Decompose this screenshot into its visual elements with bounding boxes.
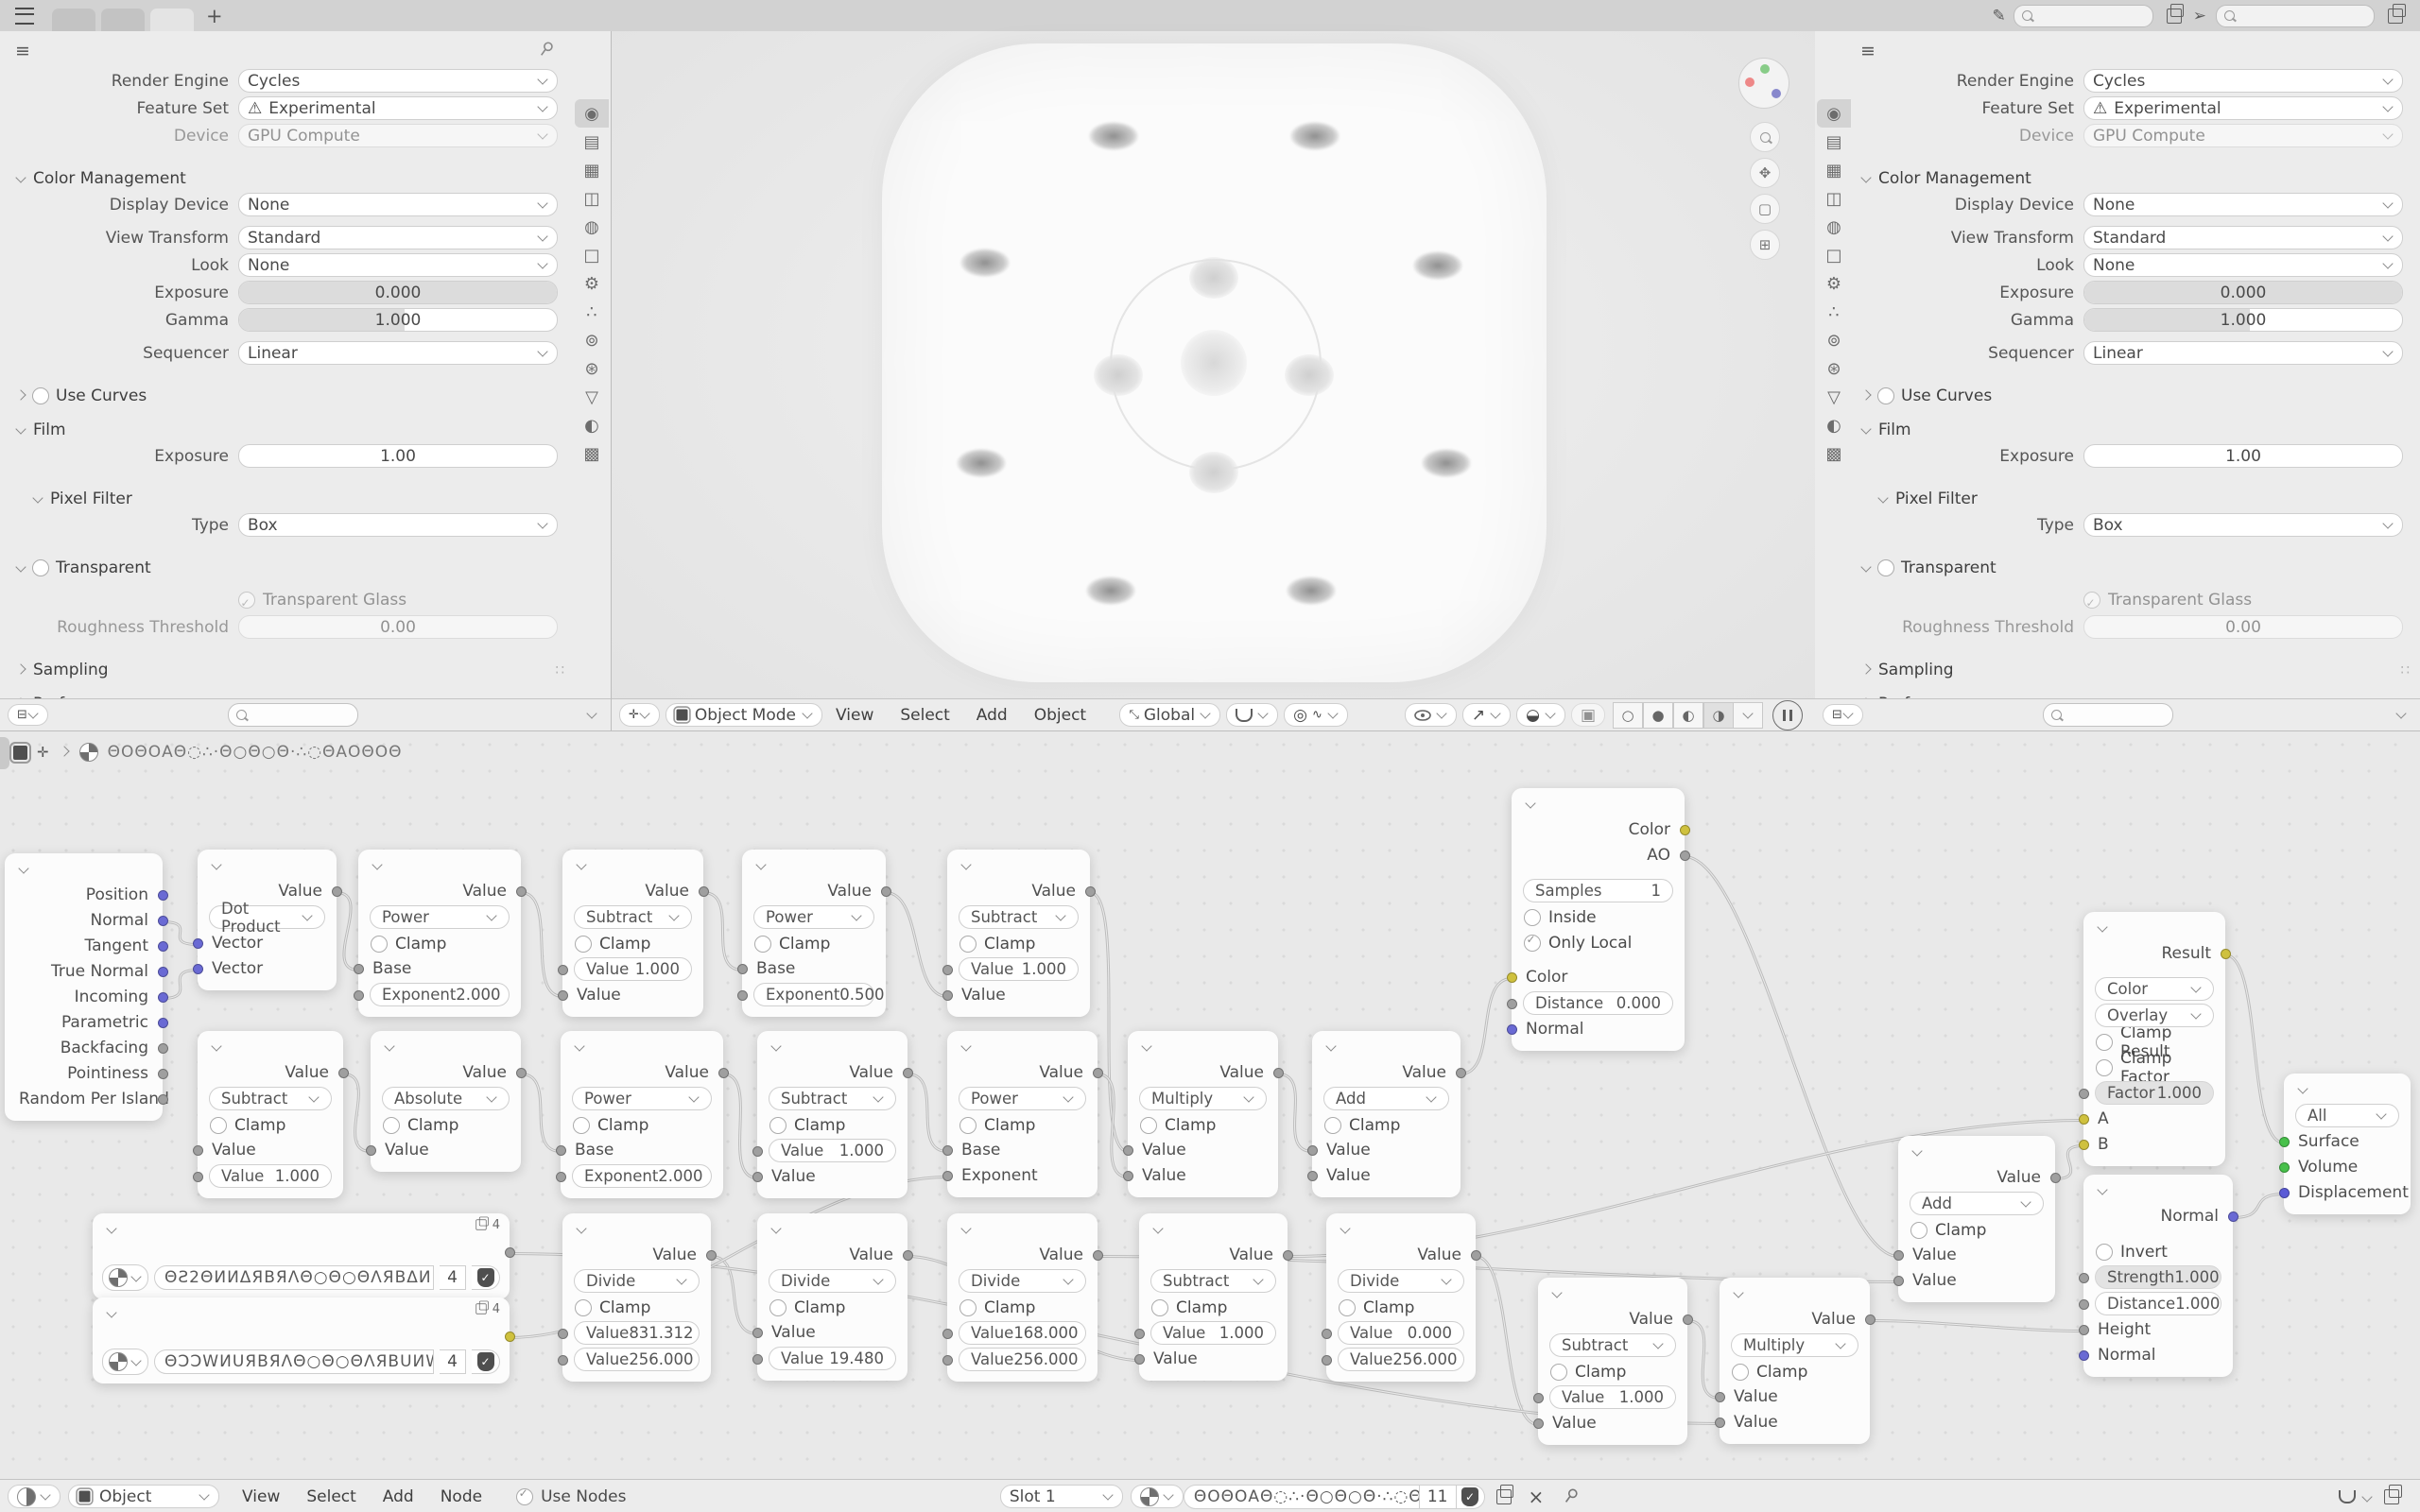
exposure-slider[interactable]: 0.000 [238,281,558,304]
section-film[interactable]: Film [0,416,575,444]
node-group2[interactable]: 4 ΘƆƆWИUЯВЯΛΘ○Θ○ΘΛЯВUИWƆƆΘ 4 ✓ [93,1297,510,1383]
edit-icon[interactable]: ✎ [1993,7,2006,26]
section-checkbox[interactable] [1877,387,1894,404]
node-group1[interactable]: 4 ΘƧ2ΘИИΔЯВЯΛΘ○Θ○ΘΛЯВΔИИΘ2ƧΘ 4 ✓ [93,1213,510,1299]
section-pixel-filter[interactable]: Pixel Filter [1845,485,2420,513]
share-icon[interactable]: ➢ [2193,7,2206,26]
shading-mode-2[interactable]: ◐ [1673,702,1703,729]
pause-button[interactable] [1772,700,1803,730]
node-div3[interactable]: ValueDivideClampValue168.000Value256.000 [947,1213,1098,1382]
proportional-edit-toggle[interactable]: ◎∿ [1284,703,1348,727]
node-geometry[interactable]: PositionNormalTangentTrue NormalIncoming… [5,853,163,1121]
operation-dropdown[interactable]: Overlay [2095,1004,2214,1027]
snap-magnet-icon[interactable] [2339,1490,2356,1503]
render-engine-dropdown[interactable]: Cycles [2083,69,2403,93]
socket-in-value[interactable] [1322,1329,1332,1339]
sequencer-dropdown[interactable]: Linear [238,341,558,365]
node-collapse-icon[interactable] [1911,1145,1922,1156]
checkbox[interactable] [1732,1364,1749,1381]
socket-in-value[interactable] [1123,1145,1133,1156]
properties-search-input[interactable] [2043,703,2173,727]
roughness-threshold-field[interactable]: 0.00 [2083,615,2403,639]
node-collapse-icon[interactable] [574,1040,584,1051]
socket-in-value[interactable] [1533,1393,1544,1403]
socket-out-normal[interactable] [158,916,168,926]
node-mult2[interactable]: ValueMultiplyClampValueValue [1720,1278,1870,1444]
socket-out-value[interactable] [516,886,527,897]
socket-out-value[interactable] [881,886,891,897]
checkbox[interactable] [959,1117,977,1134]
exponent-value-field[interactable]: Exponent0.500 [753,983,874,1006]
window-tab[interactable] [150,9,194,31]
value-value-field[interactable]: Value1.000 [769,1139,896,1162]
socket-in-value[interactable] [1715,1392,1725,1402]
checkbox[interactable] [1339,1299,1356,1316]
socket-out-backfacing[interactable] [158,1043,168,1054]
socket-in-value[interactable] [942,1355,953,1366]
exposure-field[interactable]: 1.00 [2083,444,2403,468]
menu-icon[interactable] [15,8,34,25]
socket-in-base[interactable] [942,1145,953,1156]
checkbox[interactable] [383,1117,400,1134]
zoom-tool-icon[interactable] [1750,122,1780,152]
group-datablock-icon[interactable] [102,1264,148,1291]
new-tab-button[interactable]: + [206,5,223,27]
node-div1[interactable]: ValueDivideClampValue831.312Value256.000 [562,1213,711,1382]
checkbox[interactable] [769,1117,786,1134]
node-sub4[interactable]: ValueSubtractClampValue1.000Value [757,1031,907,1198]
value-value-field[interactable]: Value0.000 [1338,1321,1464,1345]
properties-tab-render[interactable]: ◉ [575,99,609,128]
socket-in-exponent[interactable] [354,990,364,1001]
socket-in-value[interactable] [1322,1355,1332,1366]
socket-in-normal[interactable] [1507,1024,1517,1035]
node-collapse-icon[interactable] [1551,1287,1562,1297]
socket-in-value[interactable] [558,1355,568,1366]
group-datablock-icon[interactable] [102,1349,148,1375]
socket-in-value[interactable] [1307,1171,1318,1181]
editor-type-button[interactable]: ✛ [619,703,660,727]
node-collapse-icon[interactable] [2097,921,2107,932]
value-value-field[interactable]: Value1.000 [574,957,692,981]
samples-value-field[interactable]: Samples1 [1523,879,1673,902]
socket-out-value[interactable] [516,1068,527,1078]
node-collapse-icon[interactable] [2297,1083,2308,1093]
section-checkbox[interactable] [1877,559,1894,576]
socket-out-random-per-island[interactable] [158,1094,168,1105]
checkbox[interactable] [1140,1117,1157,1134]
pin-icon[interactable] [1563,1488,1580,1505]
properties-search-input[interactable] [228,703,358,727]
properties-tab-texture[interactable]: ▩ [575,439,609,468]
checkbox[interactable] [1524,935,1541,952]
socket-in-normal[interactable] [2079,1350,2089,1361]
socket-out-ao[interactable] [1680,850,1690,861]
visibility-dropdown[interactable] [1405,703,1457,727]
node-collapse-icon[interactable] [960,1040,971,1051]
socket-in-value[interactable] [752,1328,763,1338]
fake-user-shield-button[interactable]: ✓ [472,1349,500,1374]
node-outnode[interactable]: AllSurfaceVolumeDisplacement [2284,1074,2411,1214]
exponent-value-field[interactable]: Exponent2.000 [572,1164,712,1188]
viewport-menu-select[interactable]: Select [900,706,949,725]
socket-out-parametric[interactable] [158,1018,168,1028]
operation-dropdown[interactable]: Subtract [1150,1269,1276,1293]
node-collapse-icon[interactable] [384,1040,394,1051]
operation-dropdown[interactable]: Dot Product [209,905,325,929]
factor-value-field[interactable]: Factor1.000 [2095,1081,2214,1105]
socket-out-value[interactable] [1471,1250,1481,1261]
shader-context-select[interactable]: Object [68,1485,219,1508]
socket-in-distance[interactable] [2079,1299,2089,1310]
footer-options-chevron-icon[interactable] [2395,708,2406,718]
section-sampling[interactable]: Sampling ∷ [0,656,575,684]
properties-tab-particles[interactable]: ∴ [575,298,609,326]
checkbox[interactable] [1550,1364,1567,1381]
socket-in-value[interactable] [1134,1329,1145,1339]
socket-out-value[interactable] [2050,1173,2061,1183]
operation-dropdown[interactable]: Subtract [1549,1333,1676,1357]
checkbox[interactable] [1910,1222,1927,1239]
checkbox[interactable] [371,936,388,953]
viewport-3d[interactable]: ✥ ▢ ⊞ ✛ Object Mode ViewSelectAddObject … [611,31,1817,730]
node-div4[interactable]: ValueDivideClampValue0.000Value256.000 [1326,1213,1476,1382]
socket-in-value[interactable] [366,1145,376,1156]
type-dropdown[interactable]: Box [238,513,558,537]
node-collapse-icon[interactable] [1141,1040,1151,1051]
value-value-field[interactable]: Value1.000 [959,957,1079,981]
unlink-material-button[interactable]: × [1529,1486,1545,1508]
device-dropdown[interactable]: GPU Compute [238,124,558,147]
socket-in-b[interactable] [2079,1140,2089,1150]
socket-in-value[interactable] [1134,1354,1145,1365]
distance-value-field[interactable]: Distance0.000 [1523,991,1673,1015]
value-value-field[interactable]: Value1.000 [1150,1321,1276,1345]
toolbar-collapse-handle[interactable] [0,737,9,769]
checkbox[interactable] [573,1117,590,1134]
socket-in-value[interactable] [1715,1417,1725,1428]
editor-type-button[interactable] [8,1485,60,1508]
orientation-select[interactable]: ⤡Global [1119,703,1220,727]
operation-dropdown[interactable]: Multiply [1731,1333,1858,1357]
group-name-field[interactable]: ΘƧ2ΘИИΔЯВЯΛΘ○Θ○ΘΛЯВΔИИΘ2ƧΘ [154,1265,434,1290]
snap-options-chevron-icon[interactable] [2361,1491,2372,1502]
socket-in-volume[interactable] [2279,1162,2290,1173]
shading-mode-3[interactable]: ◑ [1703,702,1734,729]
value-value-field[interactable]: Value256.000 [1338,1348,1464,1371]
node-collapse-icon[interactable] [18,863,28,873]
section-pixel-filter[interactable]: Pixel Filter [0,485,575,513]
node-collapse-icon[interactable] [211,1040,221,1051]
exposure-field[interactable]: 1.00 [238,444,558,468]
xray-toggle[interactable]: ▣ [1571,703,1605,727]
properties-tab-constraints[interactable]: ⊛ [575,354,609,383]
value-value-field[interactable]: Value256.000 [959,1348,1086,1371]
fake-user-shield-button[interactable]: ✓ [1457,1485,1485,1509]
look-dropdown[interactable]: None [2083,253,2403,277]
checkbox[interactable] [2096,1034,2113,1051]
slot-select[interactable]: Slot 1 [1000,1485,1123,1508]
move-view-icon[interactable]: ✥ [1750,158,1780,188]
socket-in-value[interactable] [752,1354,763,1365]
socket-out-value[interactable] [903,1250,913,1261]
node-abs1[interactable]: ValueAbsoluteClampValue [371,1031,521,1172]
socket-in-value[interactable] [1893,1276,1904,1286]
properties-editor-icon[interactable]: ≡ [1860,41,1875,61]
window-icon[interactable] [2388,9,2403,24]
socket-in-value[interactable] [942,965,953,975]
mode-select[interactable]: Object Mode [665,703,822,727]
properties-editor-icon[interactable]: ≡ [15,41,30,61]
socket-out-value[interactable] [1273,1068,1284,1078]
operation-dropdown[interactable]: Power [753,905,874,929]
section-transparent[interactable]: Transparent [0,554,575,582]
strength-value-field[interactable]: Strength1.000 [2095,1265,2221,1289]
feature-set-dropdown[interactable]: ⚠Experimental [2083,96,2403,120]
checkbox[interactable] [1151,1299,1168,1316]
properties-tab-object[interactable]: □ [575,241,609,269]
node-collapse-icon[interactable] [211,859,221,869]
checkbox[interactable] [769,1299,786,1316]
socket-in-value[interactable] [942,990,953,1001]
node-power2[interactable]: ValuePowerClampBaseExponent0.500 [742,850,886,1017]
search-field[interactable] [2216,5,2375,27]
feature-set-dropdown[interactable]: ⚠Experimental [238,96,558,120]
exponent-value-field[interactable]: Exponent2.000 [370,983,510,1006]
filter-toggle[interactable]: ⊟ [1823,704,1863,726]
socket-out-true-normal[interactable] [158,967,168,977]
value-value-field[interactable]: Value831.312 [574,1321,700,1345]
node-add2[interactable]: ValueAddClampValueValue [1898,1136,2055,1302]
node-collapse-icon[interactable] [770,1223,781,1233]
filter-toggle[interactable]: ⊟ [8,704,48,726]
shader-node-editor[interactable]: PositionNormalTangentTrue NormalIncoming… [0,730,2420,1480]
node-power4[interactable]: ValuePowerClampBaseExponent [947,1031,1098,1197]
use-nodes-checkbox[interactable] [516,1488,533,1505]
operation-dropdown[interactable]: Divide [574,1269,700,1293]
socket-in-a[interactable] [2079,1114,2089,1125]
socket-in-surface[interactable] [2279,1137,2290,1147]
overlays-dropdown[interactable]: ◒ [1516,703,1565,727]
node-sub5[interactable]: ValueSubtractClampValue1.000Value [1139,1213,1288,1381]
socket-in-vector[interactable] [193,938,203,949]
socket-out-value[interactable] [1093,1250,1103,1261]
checkbox[interactable] [210,1117,227,1134]
socket-out-color[interactable] [1680,825,1690,835]
node-collapse-icon[interactable] [770,1040,781,1051]
exposure-slider[interactable]: 0.000 [2083,281,2403,304]
operation-dropdown[interactable]: Subtract [574,905,692,929]
socket-out-value[interactable] [1865,1314,1875,1325]
material-users-count[interactable]: 11 [1420,1485,1457,1509]
socket-out-value[interactable] [1283,1250,1293,1261]
socket-in-color[interactable] [1507,972,1517,983]
sequencer-dropdown[interactable]: Linear [2083,341,2403,365]
value-value-field[interactable]: Value168.000 [959,1321,1086,1345]
node-add1[interactable]: ValueAddClampValueValue [1312,1031,1461,1197]
socket-out-value[interactable] [903,1068,913,1078]
socket-in-value[interactable] [193,1172,203,1182]
socket-in-height[interactable] [2079,1325,2089,1335]
group-users-count[interactable]: 4 [440,1349,466,1374]
socket-out-value[interactable] [699,886,709,897]
node-collapse-icon[interactable] [2097,1184,2107,1194]
shading-mode-1[interactable]: ● [1643,702,1673,729]
socket-in-displacement[interactable] [2279,1188,2290,1198]
node-collapse-icon[interactable] [576,1223,586,1233]
viewport-menu-view[interactable]: View [836,706,873,725]
value-value-field[interactable]: Value1.000 [209,1164,332,1188]
socket-out-normal[interactable] [2228,1211,2238,1222]
group-users-count[interactable]: 4 [440,1265,466,1290]
look-dropdown[interactable]: None [238,253,558,277]
value-value-field[interactable]: Value19.480 [769,1347,896,1370]
properties-tab-modifiers[interactable]: ⚙ [575,269,609,298]
section-color-management[interactable]: Color Management [0,164,575,193]
socket-in-value[interactable] [1893,1250,1904,1261]
operation-dropdown[interactable]: Power [959,1087,1086,1110]
node-collapse-icon[interactable] [960,859,971,869]
node-collapse-icon[interactable] [755,859,766,869]
properties-tab-view-layer[interactable]: ▦ [575,156,609,184]
pin-icon[interactable] [539,41,556,58]
operation-dropdown[interactable]: Power [370,905,510,929]
checkbox[interactable] [2096,1244,2113,1261]
operation-dropdown[interactable]: Subtract [769,1087,896,1110]
node-dot[interactable]: ValueDot ProductVectorVector [198,850,337,990]
properties-tab-output[interactable]: ▤ [575,128,609,156]
section-use-curves[interactable]: Use Curves [1845,382,2420,410]
properties-tab-scene[interactable]: ◫ [575,184,609,213]
snap-toggle[interactable] [1226,703,1278,727]
operation-dropdown[interactable]: All [2295,1104,2399,1127]
display-device-dropdown[interactable]: None [2083,193,2403,216]
socket-out-value[interactable] [1456,1068,1466,1078]
footer-options-chevron-icon[interactable] [586,708,596,718]
operation-dropdown[interactable]: Divide [1338,1269,1464,1293]
node-collapse-icon[interactable] [1525,798,1535,808]
socket-in-strength[interactable] [2079,1273,2089,1283]
checkbox[interactable] [754,936,771,953]
checkbox[interactable] [1324,1117,1341,1134]
section-color-management[interactable]: Color Management [1845,164,2420,193]
socket-in-exponent[interactable] [942,1171,953,1181]
socket-out[interactable] [505,1247,515,1258]
type-dropdown[interactable]: Box [2083,513,2403,537]
socket-in-value[interactable] [1533,1418,1544,1429]
socket-in-value[interactable] [942,1329,953,1339]
gizmo-dropdown[interactable]: ↗ [1462,703,1511,727]
checkbox[interactable] [575,1299,592,1316]
operation-dropdown[interactable]: Multiply [1139,1087,1267,1110]
node-sub6[interactable]: ValueSubtractClampValue1.000Value [1538,1278,1687,1445]
operation-dropdown[interactable]: Power [572,1087,712,1110]
node-power3[interactable]: ValuePowerClampBaseExponent2.000 [561,1031,723,1198]
properties-tab-world[interactable]: ◍ [575,213,609,241]
copy-icon[interactable] [2167,9,2182,24]
section-checkbox[interactable] [32,387,49,404]
node-bump[interactable]: NormalInvertStrength1.000Distance1.000He… [2083,1175,2233,1377]
node-menu-node[interactable]: Node [441,1487,482,1506]
socket-out-position[interactable] [158,890,168,901]
address-field[interactable] [2014,5,2153,27]
roughness-threshold-field[interactable]: 0.00 [238,615,558,639]
socket-out-value[interactable] [706,1250,717,1261]
socket-out-incoming[interactable] [158,992,168,1003]
node-collapse-icon[interactable] [1325,1040,1336,1051]
node-menu-add[interactable]: Add [383,1487,414,1506]
socket-in-vector[interactable] [193,964,203,974]
socket-in-base[interactable] [354,964,364,974]
socket-out-value[interactable] [338,1068,349,1078]
operation-dropdown[interactable]: Add [1323,1087,1449,1110]
socket-in-value[interactable] [1123,1171,1133,1181]
view-transform-dropdown[interactable]: Standard [2083,226,2403,249]
fake-user-shield-button[interactable]: ✓ [472,1265,500,1290]
group-name-field[interactable]: ΘƆƆWИUЯВЯΛΘ○Θ○ΘΛЯВUИWƆƆΘ [154,1349,434,1374]
checkbox[interactable] [2083,592,2100,609]
viewport-menu-add[interactable]: Add [977,706,1008,725]
socket-in-base[interactable] [737,964,748,974]
socket-out-pointiness[interactable] [158,1069,168,1079]
operation-dropdown[interactable]: Divide [959,1269,1086,1293]
operation-dropdown[interactable]: Color [2095,977,2214,1001]
section-film[interactable]: Film [1845,416,2420,444]
view-transform-dropdown[interactable]: Standard [238,226,558,249]
viewport-menu-object[interactable]: Object [1034,706,1086,725]
section-checkbox[interactable] [32,559,49,576]
material-browse-button[interactable] [1131,1485,1184,1508]
socket-in-value[interactable] [752,1146,763,1157]
properties-tab-physics[interactable]: ⊚ [575,326,609,354]
node-collapse-icon[interactable] [106,1307,116,1317]
ortho-toggle-icon[interactable]: ⊞ [1750,230,1780,260]
node-menu-select[interactable]: Select [306,1487,355,1506]
node-ao[interactable]: ColorAOSamples1InsideOnly LocalColorDist… [1512,788,1685,1051]
node-collapse-icon[interactable] [1152,1223,1163,1233]
checkbox[interactable] [238,592,255,609]
checkbox[interactable] [959,1299,977,1316]
node-sub2[interactable]: ValueSubtractClampValue1.000Value [947,850,1090,1017]
distance-value-field[interactable]: Distance1.000 [2095,1292,2221,1315]
shading-dropdown[interactable] [1734,702,1763,729]
camera-view-icon[interactable]: ▢ [1750,194,1780,224]
node-mult1[interactable]: ValueMultiplyClampValueValue [1128,1031,1278,1197]
material-name-field[interactable]: ΘΟΘΟΑΘ◌∴·Θ○Θ○Θ·∴◌ΘΑΟΘΟΘ [1184,1485,1420,1509]
new-material-icon[interactable] [1496,1489,1512,1504]
section-transparent[interactable]: Transparent [1845,554,2420,582]
socket-out[interactable] [505,1332,515,1342]
socket-out-value[interactable] [1093,1068,1103,1078]
shading-mode-0[interactable]: ○ [1613,702,1643,729]
device-dropdown[interactable]: GPU Compute [2083,124,2403,147]
socket-in-value[interactable] [558,1329,568,1339]
socket-in-value[interactable] [193,1145,203,1156]
node-mix[interactable]: ResultColorOverlayClamp ResultClamp Fact… [2083,912,2225,1166]
node-collapse-icon[interactable] [372,859,382,869]
socket-out-value[interactable] [1085,886,1096,897]
window-tab[interactable] [101,9,145,31]
display-device-dropdown[interactable]: None [238,193,558,216]
node-sub1[interactable]: ValueSubtractClampValue1.000Value [562,850,703,1017]
checkbox[interactable] [575,936,592,953]
socket-out-value[interactable] [332,886,342,897]
operation-dropdown[interactable]: Absolute [382,1087,510,1110]
socket-out-tangent[interactable] [158,941,168,952]
operation-dropdown[interactable]: Subtract [959,905,1079,929]
section-use-curves[interactable]: Use Curves [0,382,575,410]
socket-in-base[interactable] [556,1145,566,1156]
